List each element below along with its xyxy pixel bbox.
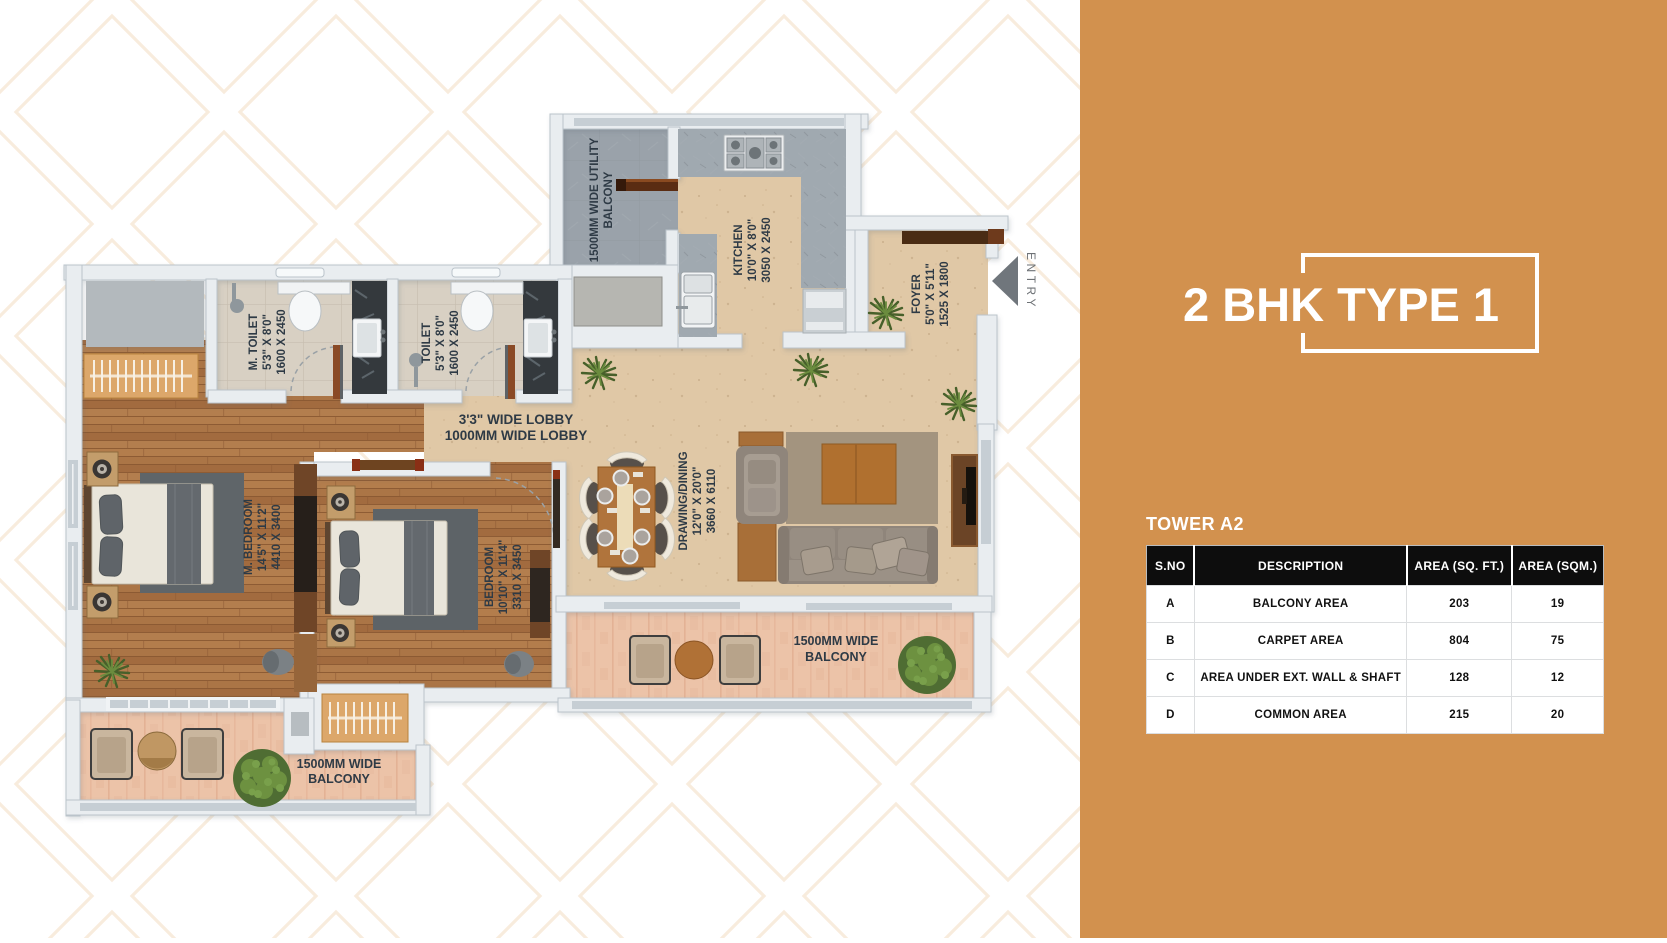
svg-text:3050 X 2450: 3050 X 2450: [761, 217, 773, 282]
svg-text:5'3" X 8'0": 5'3" X 8'0": [435, 315, 447, 371]
svg-text:1000MM WIDE LOBBY: 1000MM WIDE LOBBY: [445, 428, 588, 443]
svg-text:3310 X 3450: 3310 X 3450: [512, 544, 524, 609]
svg-text:BALCONY: BALCONY: [603, 171, 615, 228]
svg-text:3'3" WIDE LOBBY: 3'3" WIDE LOBBY: [459, 412, 574, 427]
svg-text:1600 X 2450: 1600 X 2450: [449, 310, 461, 375]
svg-text:3660 X 6110: 3660 X 6110: [706, 469, 718, 534]
svg-text:DRAWING/DINING: DRAWING/DINING: [678, 451, 690, 550]
svg-text:14'5" X 11'2": 14'5" X 11'2": [257, 503, 269, 571]
svg-text:KITCHEN: KITCHEN: [733, 224, 745, 275]
svg-text:5'3" X 8'0": 5'3" X 8'0": [262, 314, 274, 370]
svg-text:M. TOILET: M. TOILET: [248, 314, 260, 371]
svg-text:10'10" X 11'4": 10'10" X 11'4": [498, 540, 510, 615]
svg-text:ENTRY: ENTRY: [1024, 252, 1038, 310]
svg-text:10'0" X 8'0": 10'0" X 8'0": [747, 219, 759, 281]
svg-text:5'0" X 5'11": 5'0" X 5'11": [925, 263, 937, 325]
svg-text:FOYER: FOYER: [911, 274, 923, 314]
svg-text:4410 X 3400: 4410 X 3400: [271, 504, 283, 569]
svg-text:1500MM WIDE: 1500MM WIDE: [297, 757, 382, 771]
svg-text:M. BEDROOM: M. BEDROOM: [243, 499, 255, 575]
svg-text:1525 X 1800: 1525 X 1800: [939, 261, 951, 326]
svg-text:TOILET: TOILET: [421, 323, 433, 364]
svg-text:1500MM WIDE UTILITY: 1500MM WIDE UTILITY: [589, 137, 601, 262]
svg-text:12'0" X 20'0": 12'0" X 20'0": [692, 467, 704, 536]
svg-text:BEDROOM: BEDROOM: [484, 547, 496, 607]
svg-text:BALCONY: BALCONY: [805, 650, 867, 664]
svg-text:1500MM WIDE: 1500MM WIDE: [794, 634, 879, 648]
svg-text:BALCONY: BALCONY: [308, 772, 370, 786]
svg-text:1600 X 2450: 1600 X 2450: [276, 309, 288, 374]
